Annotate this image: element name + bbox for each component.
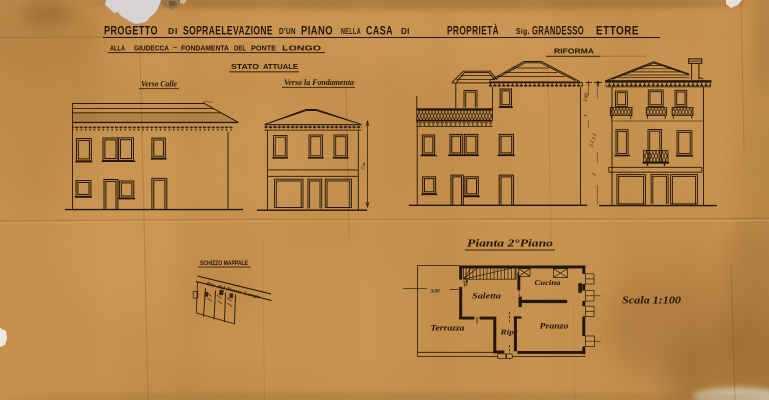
svg-text:Verso Calle: Verso Calle: [141, 80, 177, 89]
svg-text:Terrazza: Terrazza: [431, 324, 465, 333]
svg-text:RIFORMA: RIFORMA: [554, 47, 595, 56]
svg-text:PROGETTO: PROGETTO: [104, 24, 158, 38]
svg-text:Verso la Fondamenta: Verso la Fondamenta: [284, 78, 354, 87]
svg-text:SCHIZZO MAPPALE: SCHIZZO MAPPALE: [200, 261, 248, 267]
svg-text:STATO: STATO: [231, 62, 259, 71]
svg-text:GIUDECCA: GIUDECCA: [134, 46, 169, 53]
svg-text:LONGO: LONGO: [282, 46, 322, 53]
svg-text:Cucina: Cucina: [535, 279, 562, 287]
svg-text:Scala 1:100: Scala 1:100: [622, 295, 682, 307]
svg-text:PIANO: PIANO: [301, 24, 333, 38]
svg-text:PROPRIETÀ: PROPRIETÀ: [447, 23, 499, 38]
svg-text:FONDAMENTA: FONDAMENTA: [181, 46, 229, 53]
svg-text:DI: DI: [168, 26, 178, 36]
svg-text:ALLA: ALLA: [110, 46, 125, 53]
svg-text:D'UN: D'UN: [279, 26, 296, 36]
svg-text:Saletta: Saletta: [472, 292, 501, 301]
svg-text:DI: DI: [401, 27, 410, 36]
svg-text:Sig.: Sig.: [516, 26, 530, 36]
svg-text:PONTE: PONTE: [251, 46, 276, 53]
svg-text:3.00: 3.00: [430, 289, 440, 295]
svg-text:NELLA: NELLA: [341, 27, 361, 36]
svg-text:~: ~: [173, 45, 177, 52]
svg-text:ATTUALE: ATTUALE: [263, 62, 298, 71]
svg-text:CASA: CASA: [366, 24, 393, 38]
svg-text:GRANDESSO: GRANDESSO: [532, 24, 584, 38]
svg-text:DEL: DEL: [234, 46, 247, 53]
svg-text:Pranzo: Pranzo: [540, 321, 569, 330]
svg-text:SOPRAELEVAZIONE: SOPRAELEVAZIONE: [183, 24, 273, 38]
svg-text:ETTORE: ETTORE: [596, 24, 639, 38]
svg-text:Pianta 2°Piano: Pianta 2°Piano: [467, 238, 554, 250]
